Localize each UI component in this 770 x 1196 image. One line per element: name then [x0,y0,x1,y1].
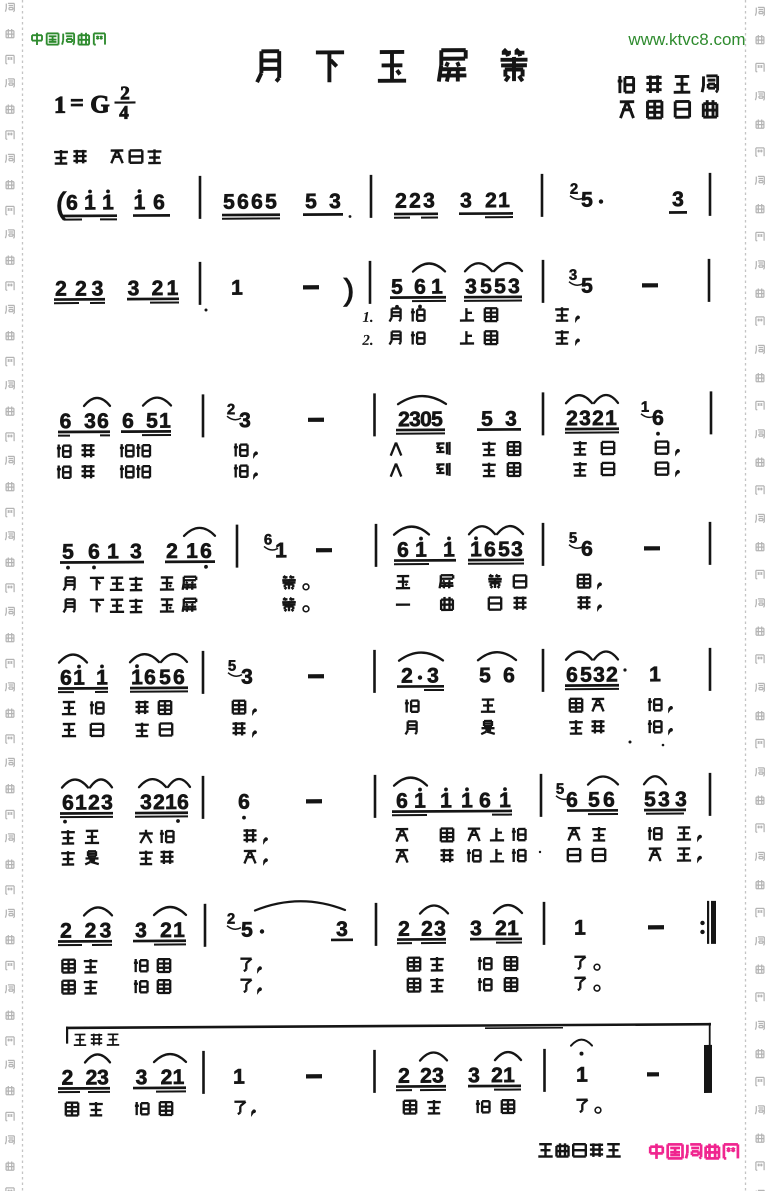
svg-text:1: 1 [576,1064,588,1087]
svg-text:6: 6 [566,789,578,812]
svg-text:6: 6 [66,192,78,215]
svg-text:2: 2 [55,278,67,301]
svg-text:2: 2 [227,911,235,928]
svg-text:3: 3 [241,666,253,689]
svg-text:5: 5 [581,189,593,212]
svg-text:6: 6 [479,789,491,812]
svg-text:6: 6 [652,407,664,430]
svg-text:3: 3 [675,788,687,811]
svg-text:1: 1 [233,1066,245,1089]
svg-text:1: 1 [470,538,482,561]
svg-text:2: 2 [485,189,497,212]
svg-text:3: 3 [465,275,477,298]
svg-text:1: 1 [173,1066,185,1089]
svg-text:3: 3 [505,408,517,431]
svg-text:3: 3 [409,408,421,431]
svg-text:1: 1 [167,277,179,300]
svg-text:2: 2 [88,791,100,814]
svg-text:3: 3 [140,791,152,814]
svg-text:3: 3 [434,917,446,940]
svg-text:5: 5 [569,530,577,547]
svg-text:6: 6 [177,791,189,814]
svg-text:1: 1 [75,791,87,814]
svg-text:2: 2 [420,1065,432,1088]
svg-text:3: 3 [427,664,439,687]
svg-text:5: 5 [588,789,600,812]
svg-text:2: 2 [398,918,410,941]
svg-text:6: 6 [60,667,72,690]
svg-text:2: 2 [398,1065,410,1088]
svg-text:1: 1 [96,666,108,689]
svg-text:1: 1 [165,791,177,814]
svg-text:5: 5 [146,410,158,433]
svg-text:1: 1 [102,191,114,214]
svg-text:5: 5 [62,541,74,564]
svg-text:www.ktvc8.com: www.ktvc8.com [627,30,745,49]
svg-text:1: 1 [499,789,511,812]
svg-text:2: 2 [160,919,172,942]
svg-text:6: 6 [122,410,134,433]
svg-text:6: 6 [237,191,249,214]
svg-text:6: 6 [88,540,100,563]
svg-text:): ) [344,274,354,307]
svg-text:6: 6 [396,790,408,813]
svg-text:1: 1 [461,789,473,812]
svg-text:6: 6 [153,191,165,214]
svg-text:1: 1 [649,663,661,686]
svg-text:5: 5 [581,275,593,298]
svg-text:2: 2 [62,1067,74,1090]
svg-text:1: 1 [73,667,85,690]
svg-text:2: 2 [398,408,410,431]
svg-text:3: 3 [423,189,435,212]
svg-text:1: 1 [84,191,96,214]
svg-text:6: 6 [144,666,156,689]
svg-text:3: 3 [569,267,577,284]
svg-text:1.: 1. [362,310,373,326]
svg-text:2: 2 [60,920,72,943]
svg-text:1: 1 [498,189,510,212]
svg-text:2: 2 [120,83,129,104]
svg-text:1: 1 [440,789,452,812]
svg-text:5: 5 [480,275,492,298]
svg-text:1: 1 [415,539,427,562]
svg-text:2: 2 [570,181,578,198]
svg-text:2: 2 [491,1064,503,1087]
svg-text:6: 6 [200,540,212,563]
svg-text:1: 1 [186,540,198,563]
svg-text:3: 3 [658,788,670,811]
svg-text:3: 3 [460,189,472,212]
svg-text:5: 5 [223,191,235,214]
svg-text:1: 1 [231,277,243,300]
svg-text:3: 3 [128,277,140,300]
svg-text:3: 3 [511,538,523,561]
svg-text:3: 3 [135,919,147,942]
svg-text:6: 6 [60,410,72,433]
svg-text:3: 3 [100,919,112,942]
svg-text:5: 5 [498,538,510,561]
svg-text:1: 1 [574,917,586,940]
svg-text:5: 5 [391,276,403,299]
svg-text:1: 1 [173,919,185,942]
svg-text:1: 1 [275,539,287,562]
svg-text:4: 4 [119,103,129,124]
svg-text:2: 2 [395,190,407,213]
svg-text:3: 3 [92,277,104,300]
svg-text:2: 2 [606,663,618,686]
svg-text:2: 2 [85,919,97,942]
svg-text:2: 2 [166,540,178,563]
svg-text:3: 3 [136,1066,148,1089]
svg-text:1: 1 [134,191,146,214]
svg-text:2: 2 [161,1066,173,1089]
svg-text:2.: 2. [361,333,373,349]
svg-text:2: 2 [566,407,578,430]
svg-text:6: 6 [238,791,250,814]
svg-text:5: 5 [265,190,277,213]
svg-text:6: 6 [484,538,496,561]
svg-text:6: 6 [581,538,593,561]
svg-text:3: 3 [508,275,520,298]
svg-text:5: 5 [481,408,493,431]
svg-text:3: 3 [579,407,591,430]
svg-text:5: 5 [228,658,236,675]
svg-text:3: 3 [101,791,113,814]
svg-text:6: 6 [603,788,615,811]
svg-text:6: 6 [173,666,185,689]
svg-text:5: 5 [431,408,443,431]
svg-text:3: 3 [97,1066,109,1089]
svg-text:5: 5 [580,664,592,687]
svg-text:3: 3 [593,664,605,687]
svg-text:5: 5 [305,190,317,213]
svg-text:G: G [90,91,109,118]
svg-text:6: 6 [97,410,109,433]
svg-text:1: 1 [641,399,649,416]
svg-text:3: 3 [432,1064,444,1087]
svg-text:3: 3 [239,409,251,432]
svg-text:5: 5 [159,666,171,689]
svg-text:3: 3 [336,918,348,941]
svg-text:=: = [70,91,84,117]
svg-text:6: 6 [503,664,515,687]
svg-text:1: 1 [159,410,171,433]
svg-text:2: 2 [592,407,604,430]
svg-text:5: 5 [241,919,253,942]
svg-text:6: 6 [566,664,578,687]
svg-text:6: 6 [414,276,426,299]
svg-text:2: 2 [227,401,235,418]
svg-text:1: 1 [503,1064,515,1087]
svg-text:2: 2 [152,277,164,300]
svg-text:2: 2 [421,918,433,941]
svg-text:2: 2 [401,665,413,688]
svg-text:3: 3 [329,190,341,213]
svg-text:6: 6 [397,539,409,562]
svg-text:5: 5 [556,781,564,798]
svg-text:6: 6 [62,792,74,815]
svg-text:5: 5 [479,664,491,687]
svg-text:3: 3 [470,917,482,940]
svg-text:3: 3 [672,188,684,211]
svg-text:2: 2 [86,1066,98,1089]
svg-text:6: 6 [264,531,272,548]
svg-text:1: 1 [431,275,443,298]
svg-text:2: 2 [409,190,421,213]
svg-text:3: 3 [468,1064,480,1087]
svg-text:3: 3 [84,410,96,433]
svg-text:1: 1 [507,917,519,940]
svg-text:1: 1 [54,93,66,119]
svg-text:1: 1 [414,790,426,813]
svg-text:1: 1 [131,666,143,689]
svg-text:2: 2 [153,791,165,814]
svg-text:1: 1 [605,407,617,430]
svg-text:5: 5 [644,788,656,811]
svg-text:6: 6 [251,190,263,213]
svg-text:3: 3 [130,540,142,563]
svg-text:2: 2 [495,917,507,940]
svg-text:1: 1 [443,538,455,561]
svg-text:1: 1 [107,540,119,563]
svg-text:5: 5 [494,275,506,298]
svg-text:2: 2 [75,277,87,300]
svg-text:0: 0 [420,408,432,431]
